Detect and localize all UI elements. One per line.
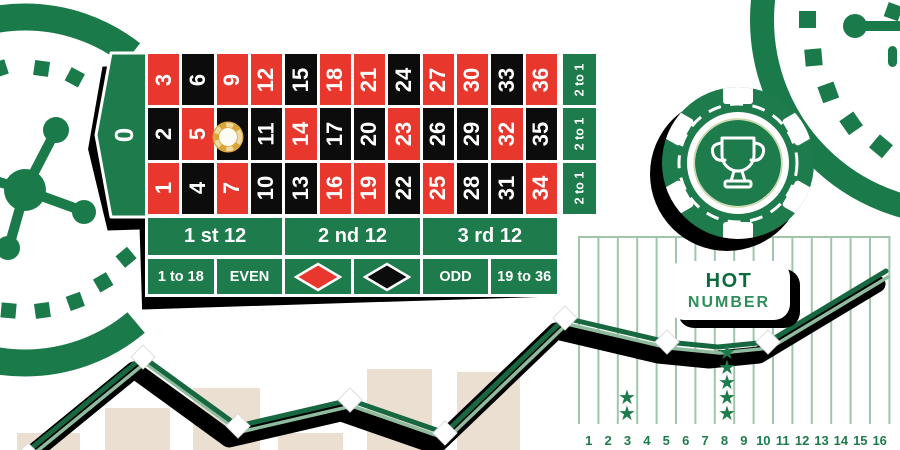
bet-cell-1-to-18[interactable]: 1 to 18 (148, 259, 214, 294)
bet-cell-12[interactable]: 12 (251, 54, 282, 105)
cell-number: 14 (288, 122, 314, 146)
cell-number: 34 (528, 176, 554, 200)
cell-number: 9 (219, 74, 245, 86)
cell-number: 11 (254, 122, 280, 145)
bet-cell-16[interactable]: 16 (320, 163, 351, 214)
cell-number: 28 (460, 176, 486, 200)
bet-cell-29[interactable]: 29 (457, 108, 488, 159)
cell-label: 2 to 1 (572, 172, 586, 205)
cell-number: 20 (357, 122, 383, 146)
zero-label: 0 (109, 128, 139, 142)
bet-cell-34[interactable]: 34 (526, 163, 557, 214)
bet-cell-24[interactable]: 24 (388, 54, 419, 105)
bet-cell-19[interactable]: 19 (354, 163, 385, 214)
cell-number: 31 (494, 176, 520, 200)
cell-number: 18 (322, 67, 348, 91)
cell-number: 30 (460, 67, 486, 91)
cell-number: 12 (254, 67, 280, 91)
bet-cell-3[interactable]: 3 (148, 54, 179, 105)
bet-cell-28[interactable]: 28 (457, 163, 488, 214)
bet-cell-13[interactable]: 13 (285, 163, 316, 214)
badge-hot-text: HOT (706, 270, 753, 293)
bet-cell-20[interactable]: 20 (354, 108, 385, 159)
bet-cell-27[interactable]: 27 (423, 54, 454, 105)
cell-number: 10 (254, 176, 280, 200)
outside-bets: 1 to 18EVENODD19 to 36 (145, 256, 560, 297)
cell-number: 32 (494, 122, 520, 146)
cell-number: 1 (151, 182, 177, 194)
roulette-table: 0 36912151821242730333625811141720232629… (94, 51, 597, 297)
bet-cell-dozen-2[interactable]: 2 nd 12 (285, 218, 419, 255)
cell-number: 26 (425, 122, 451, 146)
bet-cell-even[interactable]: EVEN (217, 259, 283, 294)
bet-cell-2to1-1[interactable]: 2 to 1 (563, 54, 596, 105)
bet-cell-4[interactable]: 4 (182, 163, 213, 214)
cell-number: 5 (185, 128, 211, 140)
black-diamond-icon (363, 262, 411, 292)
cell-number: 17 (322, 122, 348, 146)
cell-number: 16 (322, 176, 348, 200)
bet-cell-32[interactable]: 32 (491, 108, 522, 159)
cell-number: 25 (425, 176, 451, 200)
bet-cell-22[interactable]: 22 (388, 163, 419, 214)
bet-cell-9[interactable]: 9 (217, 54, 248, 105)
bet-cell-31[interactable]: 31 (491, 163, 522, 214)
bet-cell-dozen-1[interactable]: 1 st 12 (148, 218, 282, 255)
cell-number: 36 (528, 67, 554, 91)
roulette-hot-numbers-illustration: ★★★★★★★12345678910111213141516 0 3691215… (0, 0, 900, 450)
cell-number: 15 (288, 67, 314, 91)
badge-number-text: NUMBER (688, 294, 770, 312)
bet-cell-36[interactable]: 36 (526, 54, 557, 105)
bet-cell-14[interactable]: 14 (285, 108, 316, 159)
bet-cell-17[interactable]: 17 (320, 108, 351, 159)
bet-cell-odd[interactable]: ODD (423, 259, 489, 294)
bet-cell-33[interactable]: 33 (491, 54, 522, 105)
bet-cell-35[interactable]: 35 (526, 108, 557, 159)
bet-cell-21[interactable]: 21 (354, 54, 385, 105)
bet-cell-5[interactable]: 5 (182, 108, 213, 159)
bet-cell-2[interactable]: 2 (148, 108, 179, 159)
bet-cell-7[interactable]: 7 (217, 163, 248, 214)
bet-cell-18[interactable]: 18 (320, 54, 351, 105)
bet-cell-10[interactable]: 10 (251, 163, 282, 214)
bet-cell-19-to-36[interactable]: 19 to 36 (491, 259, 557, 294)
bet-cell-red-diamond[interactable] (285, 259, 351, 294)
cell-label: 2 to 1 (572, 63, 586, 96)
cell-number: 13 (288, 176, 314, 200)
number-grid: 3691215182124273033362581114172023262932… (145, 51, 560, 217)
bet-cell-2to1-2[interactable]: 2 to 1 (563, 108, 596, 159)
column-bets: 2 to 12 to 12 to 1 (560, 51, 597, 217)
cell-number: 27 (425, 67, 451, 91)
bet-cell-11[interactable]: 11 (251, 108, 282, 159)
cell-number: 3 (151, 74, 177, 86)
cell-number: 21 (357, 67, 383, 91)
bet-cell-15[interactable]: 15 (285, 54, 316, 105)
bet-cell-26[interactable]: 26 (423, 108, 454, 159)
bet-cell-black-diamond[interactable] (354, 259, 420, 294)
dozen-bets: 1 st 122 nd 123 rd 12 (145, 215, 560, 258)
cell-number: 19 (357, 176, 383, 200)
red-diamond-icon (294, 262, 342, 292)
cell-number: 35 (528, 122, 554, 146)
cell-label: 2 to 1 (572, 118, 586, 151)
bet-cell-6[interactable]: 6 (182, 54, 213, 105)
trophy-chip[interactable] (643, 68, 833, 258)
bet-cell-30[interactable]: 30 (457, 54, 488, 105)
bet-cell-1[interactable]: 1 (148, 163, 179, 214)
bet-cell-zero[interactable]: 0 (94, 51, 150, 219)
cell-number: 4 (185, 182, 211, 194)
bet-cell-23[interactable]: 23 (388, 108, 419, 159)
hot-number-badge: HOT NUMBER (668, 261, 790, 320)
cell-number: 33 (494, 67, 520, 91)
bet-cell-dozen-3[interactable]: 3 rd 12 (423, 218, 557, 255)
bet-cell-25[interactable]: 25 (423, 163, 454, 214)
bet-cell-2to1-3[interactable]: 2 to 1 (563, 163, 596, 214)
cell-number: 29 (460, 122, 486, 146)
cell-number: 22 (391, 176, 417, 200)
cell-number: 24 (391, 67, 417, 91)
gold-chip-on-number-8[interactable] (211, 120, 245, 154)
cell-number: 7 (219, 182, 245, 194)
cell-number: 23 (391, 122, 417, 146)
cell-number: 6 (185, 74, 211, 86)
cell-number: 2 (151, 128, 177, 140)
